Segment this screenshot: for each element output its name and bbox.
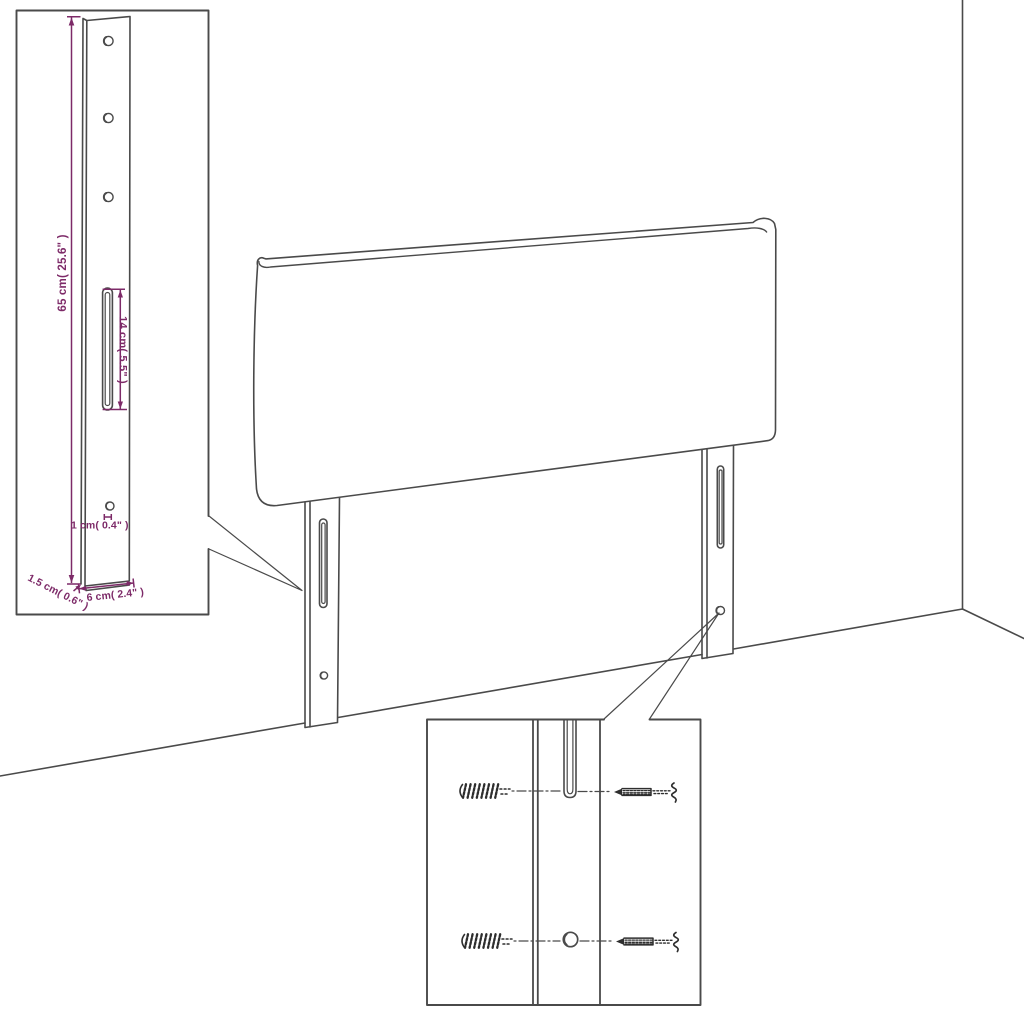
headboard-panel [254, 218, 776, 505]
inset-leg-slot [103, 288, 113, 410]
panel-top-lip [259, 228, 767, 267]
headboard [254, 218, 776, 727]
headboard-diagram: 65 cm( 25.6" ) 14 cm( 5.5" ) 1 cm( 0.4" … [0, 0, 1024, 1024]
inset-leg-holes [104, 36, 113, 201]
hole-diameter-dimension: 1 cm( 0.4" ) [71, 520, 129, 532]
screw-top [614, 783, 676, 802]
callout-to-hardware-inset [604, 613, 719, 719]
wall-anchor-top [460, 784, 510, 798]
inset-leg [81, 17, 130, 591]
inset-mounting-hardware [427, 720, 701, 1006]
callout-to-leg-inset [209, 516, 302, 591]
slot-length-dimension: 14 cm( 5.5" ) [117, 316, 129, 384]
headboard-left-leg [305, 498, 340, 728]
room-corner [0, 0, 1024, 776]
callout-lines [209, 516, 719, 719]
floor-line-right [963, 609, 1024, 639]
hardware-row-bottom [462, 933, 678, 952]
screw-bottom [616, 933, 678, 952]
left-leg-slot [320, 519, 328, 608]
screw-head-bottom [674, 933, 679, 952]
leg-height-dimension: 65 cm( 25.6" ) [57, 234, 69, 311]
hardware-slot [564, 720, 576, 798]
headboard-right-leg [702, 446, 734, 659]
right-leg-slot [717, 466, 723, 548]
inset-leg-detail: 65 cm( 25.6" ) 14 cm( 5.5" ) 1 cm( 0.4" … [17, 11, 209, 615]
floor-line-left [0, 609, 963, 776]
screw-head-top [672, 783, 677, 802]
wall-anchor-bottom [462, 934, 512, 948]
hardware-leg-strip [533, 720, 600, 1006]
diagram-canvas: 65 cm( 25.6" ) 14 cm( 5.5" ) 1 cm( 0.4" … [0, 0, 1024, 1024]
